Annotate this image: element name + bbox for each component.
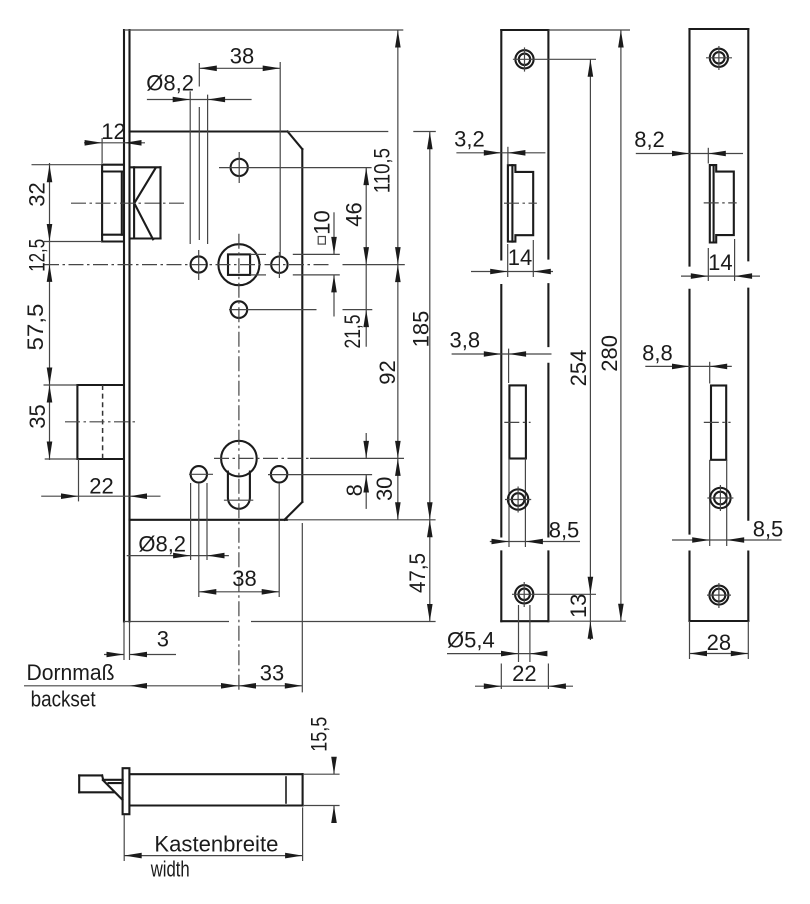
svg-text:110,5: 110,5 <box>370 148 395 193</box>
svg-text:3,2: 3,2 <box>454 126 485 151</box>
svg-text:13: 13 <box>566 594 591 618</box>
svg-text:3,8: 3,8 <box>450 328 481 353</box>
svg-text:30: 30 <box>372 477 397 501</box>
svg-text:Ø8,2: Ø8,2 <box>138 532 186 557</box>
svg-text:10: 10 <box>309 210 334 234</box>
svg-text:38: 38 <box>232 566 256 591</box>
svg-text:185: 185 <box>409 311 434 348</box>
svg-text:46: 46 <box>342 202 367 226</box>
svg-text:width: width <box>150 857 190 882</box>
svg-text:8,5: 8,5 <box>549 518 580 543</box>
svg-text:14: 14 <box>508 245 532 270</box>
svg-text:3: 3 <box>157 627 169 652</box>
svg-text:22: 22 <box>89 474 113 499</box>
svg-text:28: 28 <box>707 630 731 655</box>
svg-text:57,5: 57,5 <box>23 304 48 351</box>
svg-text:Dornmaß: Dornmaß <box>27 660 115 685</box>
svg-text:8,2: 8,2 <box>634 127 665 152</box>
svg-text:Kastenbreite: Kastenbreite <box>154 832 278 857</box>
svg-text:12: 12 <box>101 119 125 144</box>
svg-text:14: 14 <box>708 250 732 275</box>
svg-text:47,5: 47,5 <box>405 553 430 593</box>
svg-text:35: 35 <box>25 404 50 428</box>
svg-text:32: 32 <box>25 182 50 206</box>
svg-text:21,5: 21,5 <box>340 315 365 349</box>
svg-text:254: 254 <box>566 350 591 387</box>
svg-text:15,5: 15,5 <box>307 717 332 752</box>
svg-text:backset: backset <box>31 687 96 712</box>
svg-text:8,8: 8,8 <box>642 341 673 366</box>
svg-text:280: 280 <box>597 335 622 372</box>
svg-text:8,5: 8,5 <box>753 517 784 542</box>
svg-text:Ø8,2: Ø8,2 <box>146 71 194 96</box>
svg-text:8: 8 <box>342 484 367 496</box>
svg-text:38: 38 <box>230 44 254 69</box>
svg-text:22: 22 <box>512 661 536 686</box>
svg-text:Ø5,4: Ø5,4 <box>447 628 495 653</box>
svg-text:12,5: 12,5 <box>24 239 49 272</box>
svg-text:92: 92 <box>375 360 400 384</box>
svg-text:33: 33 <box>260 661 284 686</box>
